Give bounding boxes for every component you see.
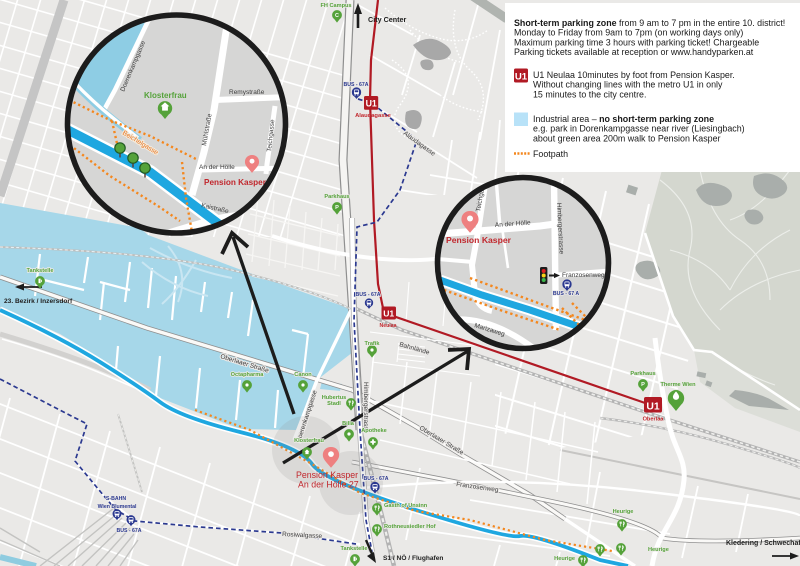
svg-text:An der Hölle 27: An der Hölle 27 [298,480,359,490]
svg-text:Stadl: Stadl [327,401,341,407]
svg-text:Wien Blumental: Wien Blumental [98,504,137,510]
svg-text:U1: U1 [366,99,377,109]
svg-text:BUS - 67A: BUS - 67A [343,82,368,88]
svg-text:Billa: Billa [342,421,355,427]
svg-text:Franzosenweg: Franzosenweg [562,272,605,279]
svg-text:BUS - 67A: BUS - 67A [116,528,141,534]
svg-text:Parkhaus: Parkhaus [630,371,655,377]
svg-text:BUS - 67 A: BUS - 67 A [553,291,580,297]
svg-text:Industrial area – no short-ter: Industrial area – no short-term parking … [533,114,714,124]
svg-text:S-BAHN: S-BAHN [106,496,126,502]
svg-text:FH Campus: FH Campus [320,3,351,9]
svg-text:U1: U1 [383,309,394,319]
svg-text:Klosterfrau: Klosterfrau [294,438,324,444]
svg-text:BUS - 67A: BUS - 67A [355,292,380,298]
svg-text:Without changing lines with th: Without changing lines with the metro U1… [533,80,723,90]
svg-text:Apotheke: Apotheke [361,428,387,434]
svg-text:23. Bezirk / Inzersdorf: 23. Bezirk / Inzersdorf [4,298,73,305]
svg-text:P: P [335,205,339,211]
svg-text:about green area 200m walk to: about green area 200m walk to Pension Ka… [533,133,721,143]
svg-text:Tankstelle: Tankstelle [27,268,54,274]
svg-text:e.g. park in Dorenkampgasse ne: e.g. park in Dorenkampgasse near river (… [533,124,745,134]
svg-text:S1 / NÖ / Flughafen: S1 / NÖ / Flughafen [383,553,443,562]
svg-text:Oberlaa: Oberlaa [643,417,665,423]
svg-text:An der Hölle: An der Hölle [199,164,235,171]
svg-text:Tankstelle: Tankstelle [341,546,368,552]
svg-text:Klosterfrau: Klosterfrau [144,91,187,100]
svg-text:City Center: City Center [368,15,407,24]
svg-text:Short-term parking zone from 9: Short-term parking zone from 9 am to 7 p… [514,18,785,28]
svg-text:Alaudagasse: Alaudagasse [355,113,392,119]
svg-text:U1 Neulaa 10minutes by foot fr: U1 Neulaa 10minutes by foot from Pension… [533,70,735,80]
svg-text:Pension Kasper: Pension Kasper [446,235,512,245]
svg-text:Maximum parking time 3 hours w: Maximum parking time 3 hours with parkin… [514,37,759,47]
svg-text:U1: U1 [646,402,660,413]
svg-text:U1: U1 [515,72,528,83]
svg-text:Parkhaus: Parkhaus [324,194,349,200]
svg-text:Trafik: Trafik [365,341,381,347]
svg-text:Kledering / Schwechat: Kledering / Schwechat [726,540,800,547]
svg-text:Heurige: Heurige [613,509,634,515]
svg-text:Himbergerstrasse: Himbergerstrasse [362,382,369,434]
svg-text:P: P [641,382,645,388]
svg-text:C: C [335,13,339,19]
svg-text:Neulaa: Neulaa [379,323,396,329]
svg-text:Monday to Friday from 9am to 7: Monday to Friday from 9am to 7pm (on wor… [514,28,743,38]
svg-text:Pension Kasper: Pension Kasper [296,470,358,480]
svg-text:Parking tickets available at r: Parking tickets available at reception o… [514,47,754,57]
svg-text:Therme Wien: Therme Wien [660,382,696,388]
svg-text:Heurige: Heurige [554,556,575,562]
svg-text:Footpath: Footpath [533,149,568,159]
svg-text:15 minutes to the city centre.: 15 minutes to the city centre. [533,89,646,99]
svg-text:Heurige: Heurige [648,547,669,553]
svg-text:Rothneusiedler Hof: Rothneusiedler Hof [384,524,436,530]
svg-text:Gasth of Unsinn: Gasth of Unsinn [384,503,428,509]
svg-text:Pension Kasper: Pension Kasper [204,178,267,187]
svg-text:BUS - 67A: BUS - 67A [363,476,388,482]
svg-text:Remystraße: Remystraße [229,89,265,96]
svg-text:Octapharma: Octapharma [231,372,265,378]
svg-text:Canon: Canon [294,372,312,378]
